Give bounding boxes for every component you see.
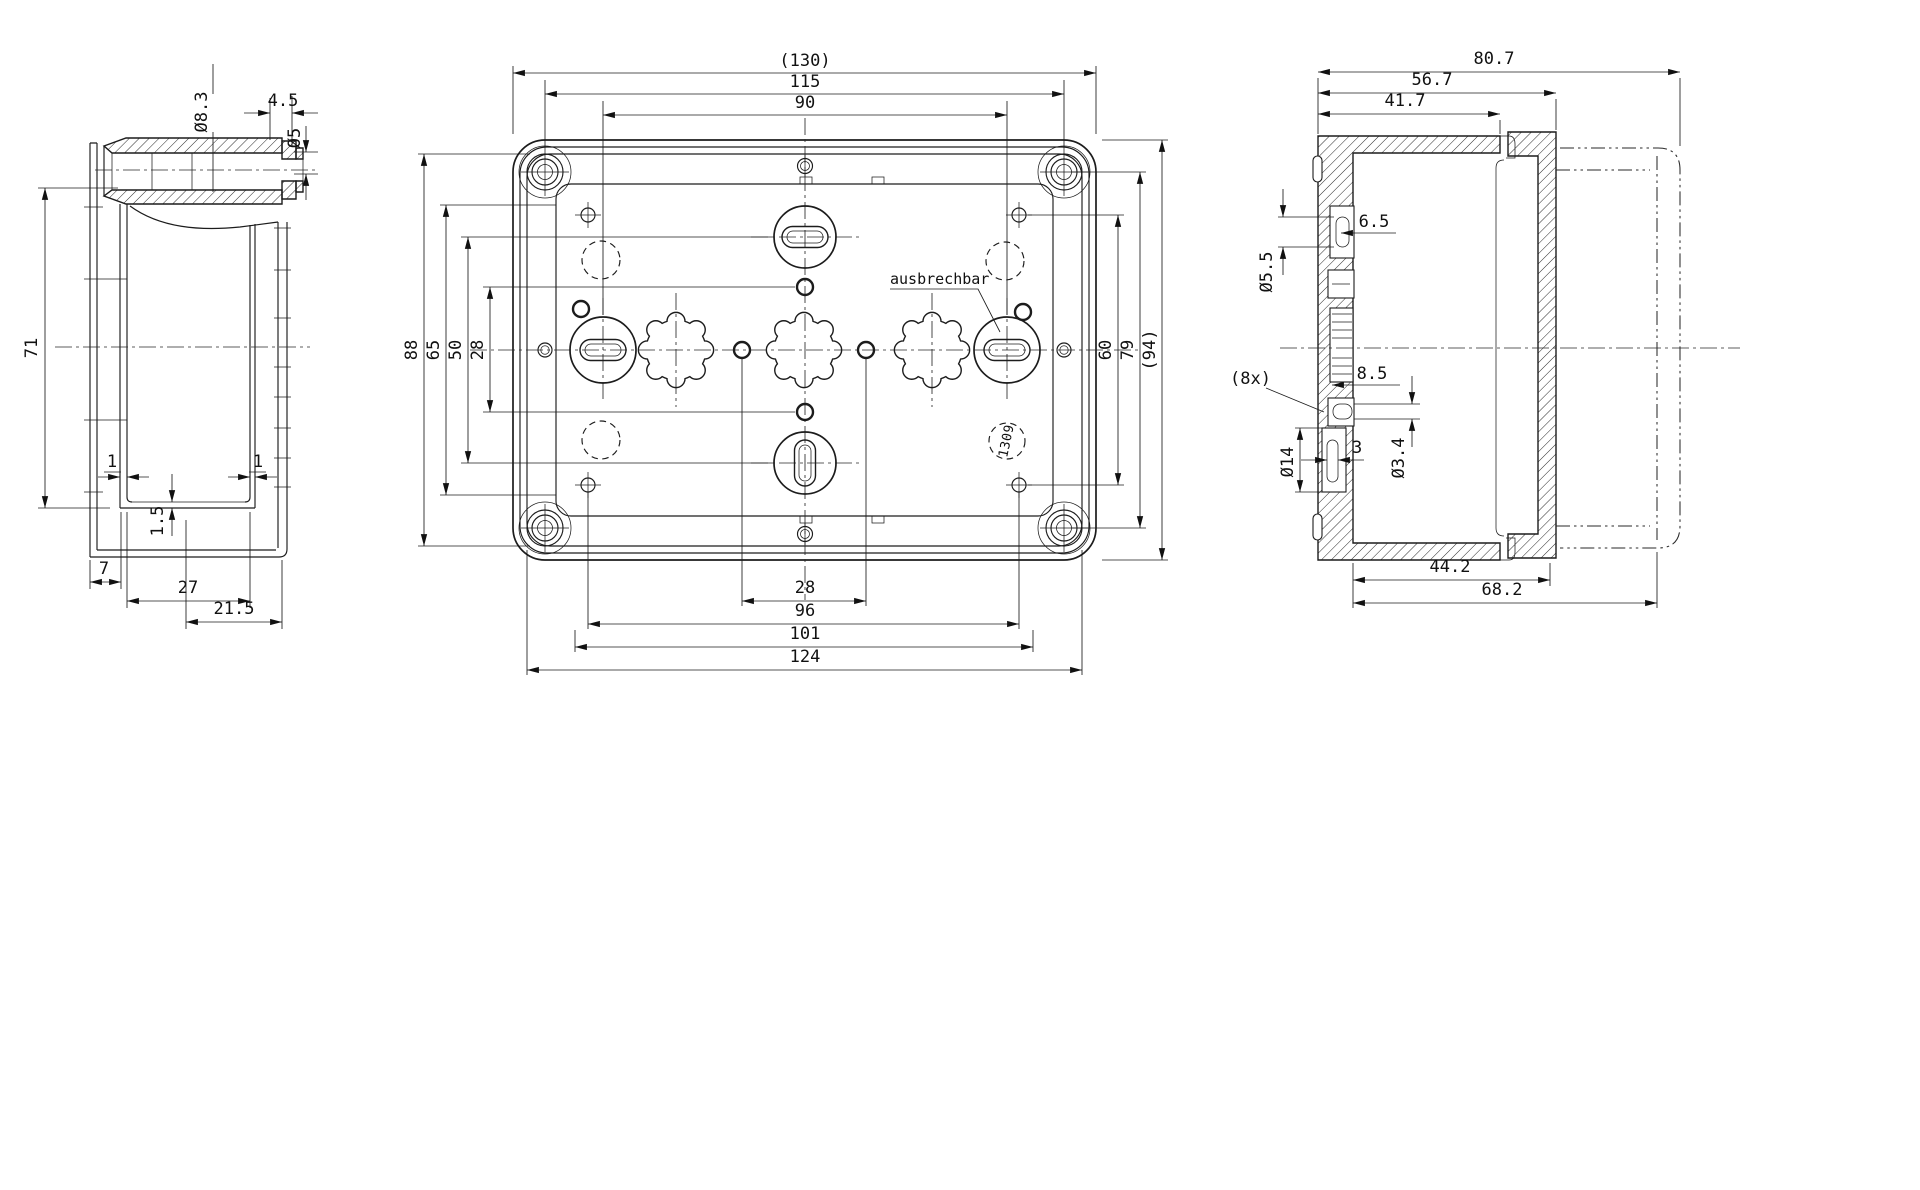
outer-snap-slot-bottom — [1313, 514, 1322, 540]
dim-28b-label: 28 — [795, 578, 815, 598]
left-side-section-view: Ø8.3 4.5 Ø5 71 1 1 1.5 7 27 21.5 — [22, 64, 318, 629]
box-inner-walls — [55, 204, 310, 508]
ausbrechbar-label: ausbrechbar — [890, 270, 989, 288]
dim-101-label: 101 — [790, 624, 821, 644]
technical-drawing-canvas: Ø8.3 4.5 Ø5 71 1 1 1.5 7 27 21.5 — [0, 0, 1920, 1190]
dim-80-7-label: 80.7 — [1474, 49, 1515, 69]
dim-90-label: 90 — [795, 93, 815, 113]
dim-7-label: 7 — [99, 559, 109, 579]
mold-number: 1309 — [996, 423, 1018, 459]
dim-6-5-label: 6.5 — [1359, 212, 1390, 232]
right-view-dimensions: 80.7 56.7 41.7 6.5 Ø5.5 (8x) 8.5 Ø3.4 Ø1… — [1230, 49, 1680, 608]
dim-130-label: (130) — [779, 51, 830, 71]
dim-dia3-4-label: Ø3.4 — [1389, 438, 1409, 479]
dim-44-2-label: 44.2 — [1430, 557, 1471, 577]
count-8x-label: (8x) — [1230, 369, 1271, 389]
dim-wall-left-label: 1 — [107, 452, 117, 472]
plan-view: 1309 ausbrechbar (130) 115 90 — [402, 51, 1168, 675]
dim-96-label: 96 — [795, 601, 815, 621]
dim-50-label: 50 — [446, 340, 466, 360]
dim-79-label: 79 — [1118, 340, 1138, 360]
dim-124-label: 124 — [790, 647, 821, 667]
dim-3-label: 3 — [1352, 438, 1362, 458]
dim-8-5-label: 8.5 — [1357, 364, 1388, 384]
dim-wall-right-label: 1 — [253, 452, 263, 472]
dim-28v-label: 28 — [468, 340, 488, 360]
dim-1-5-label: 1.5 — [148, 506, 168, 537]
enclosure-side-outline — [84, 143, 291, 557]
dim-71-label: 71 — [22, 338, 42, 358]
cable-gland-section — [95, 138, 316, 204]
dim-dia8-3-label: Ø8.3 — [192, 92, 212, 133]
dim-68-2-label: 68.2 — [1482, 580, 1523, 600]
outer-snap-slot-top — [1313, 156, 1322, 182]
dim-56-7-label: 56.7 — [1412, 70, 1453, 90]
pilot-holes — [573, 279, 1031, 420]
dim-dia14-label: Ø14 — [1278, 447, 1298, 478]
dim-dia5-label: Ø5 — [285, 128, 305, 148]
dim-27-label: 27 — [178, 578, 198, 598]
right-section-view: 80.7 56.7 41.7 6.5 Ø5.5 (8x) 8.5 Ø3.4 Ø1… — [1230, 49, 1740, 608]
dim-115-label: 115 — [790, 72, 821, 92]
lid-section — [1508, 132, 1556, 558]
dim-94-label: (94) — [1140, 330, 1160, 371]
dim-4-5-label: 4.5 — [268, 91, 299, 111]
dim-21-5-label: 21.5 — [214, 599, 255, 619]
dim-65-label: 65 — [424, 340, 444, 360]
dim-60-label: 60 — [1096, 340, 1116, 360]
dim-dia5-5-label: Ø5.5 — [1257, 252, 1277, 293]
dim-88-label: 88 — [402, 340, 422, 360]
dim-41-7-label: 41.7 — [1385, 91, 1426, 111]
